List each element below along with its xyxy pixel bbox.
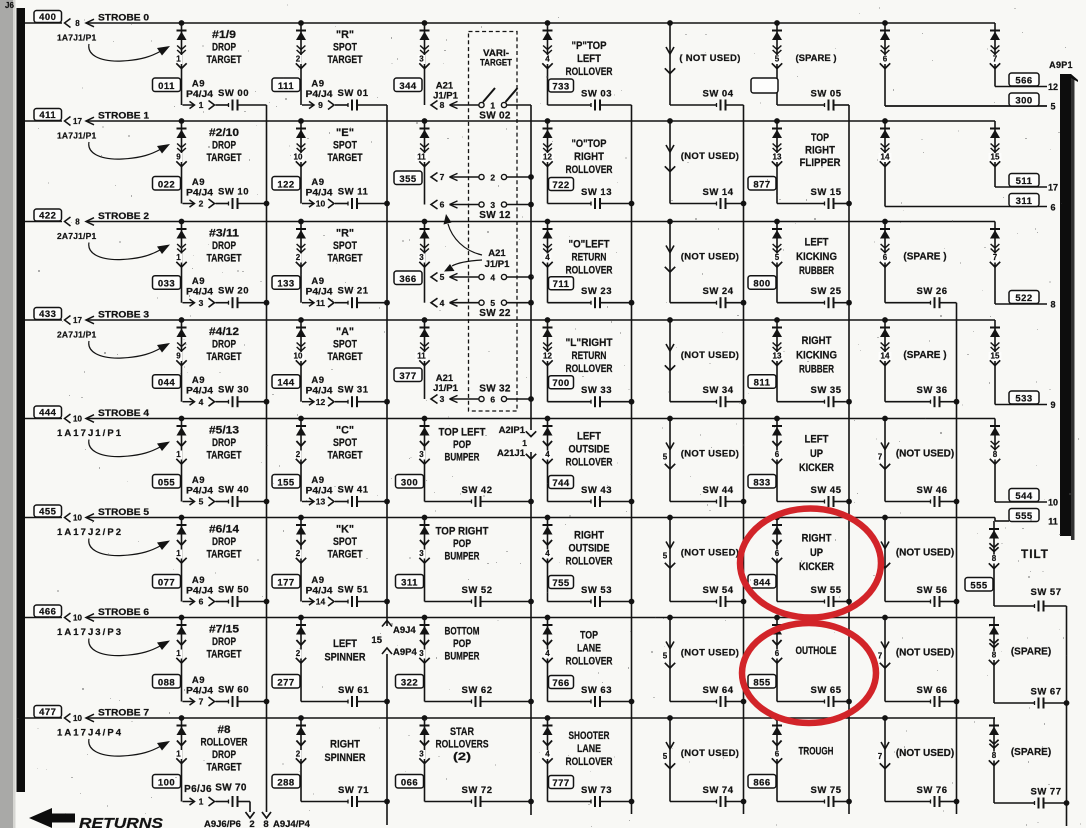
svg-text:8: 8 xyxy=(993,450,998,459)
svg-text:8: 8 xyxy=(75,19,80,28)
svg-text:8: 8 xyxy=(992,554,997,563)
svg-text:766: 766 xyxy=(552,678,569,689)
svg-text:3: 3 xyxy=(440,394,445,404)
svg-text:1: 1 xyxy=(522,438,527,448)
svg-text:TARGET: TARGET xyxy=(328,549,363,561)
svg-text:(SPARE ): (SPARE ) xyxy=(903,350,946,361)
svg-text:011: 011 xyxy=(158,81,175,92)
svg-text:300: 300 xyxy=(401,477,418,488)
svg-text:2: 2 xyxy=(296,549,301,558)
svg-text:RUBBER: RUBBER xyxy=(799,265,834,277)
svg-text:SW 40: SW 40 xyxy=(218,485,249,496)
svg-text:SW 26: SW 26 xyxy=(916,286,947,297)
svg-text:"A": "A" xyxy=(336,326,354,338)
svg-text:777: 777 xyxy=(552,778,569,789)
svg-text:4: 4 xyxy=(545,649,550,658)
svg-text:4: 4 xyxy=(490,272,495,282)
svg-text:4: 4 xyxy=(545,253,550,262)
svg-text:088: 088 xyxy=(158,677,175,688)
svg-text:755: 755 xyxy=(552,578,570,589)
svg-text:311: 311 xyxy=(401,577,418,588)
svg-text:KICKER: KICKER xyxy=(799,462,834,474)
svg-text:A9: A9 xyxy=(192,575,205,586)
svg-text:KICKING: KICKING xyxy=(796,350,837,362)
svg-text:544: 544 xyxy=(1015,491,1033,502)
svg-text:A9J4: A9J4 xyxy=(393,625,416,636)
svg-text:#6/14: #6/14 xyxy=(209,524,240,536)
svg-text:SW 36: SW 36 xyxy=(916,385,947,396)
svg-text:TARGET: TARGET xyxy=(328,450,363,462)
svg-text:15: 15 xyxy=(371,635,382,646)
svg-text:#4/12: #4/12 xyxy=(209,326,239,338)
svg-text:TOP: TOP xyxy=(811,132,829,144)
svg-text:3: 3 xyxy=(419,549,424,558)
svg-text:POP: POP xyxy=(453,638,471,650)
svg-text:477: 477 xyxy=(39,707,56,718)
svg-text:122: 122 xyxy=(277,179,294,190)
svg-text:TARGET: TARGET xyxy=(207,351,242,363)
svg-text:A21: A21 xyxy=(488,248,506,259)
svg-text:17: 17 xyxy=(73,117,82,126)
svg-text:5: 5 xyxy=(663,453,668,462)
svg-text:P4/J4: P4/J4 xyxy=(306,386,334,397)
svg-text:4: 4 xyxy=(545,549,550,558)
svg-text:10: 10 xyxy=(73,514,82,523)
svg-text:LEFT: LEFT xyxy=(805,434,829,446)
svg-text:SW 32: SW 32 xyxy=(479,384,511,395)
svg-text:DROP: DROP xyxy=(212,339,236,351)
svg-text:OUTHOLE: OUTHOLE xyxy=(796,645,837,657)
svg-text:6: 6 xyxy=(775,549,780,558)
svg-text:A9: A9 xyxy=(311,276,324,287)
svg-text:2A7J1/P1: 2A7J1/P1 xyxy=(57,330,96,340)
svg-text:SW 31: SW 31 xyxy=(337,385,368,396)
svg-text:SW 52: SW 52 xyxy=(461,585,492,596)
svg-text:13: 13 xyxy=(773,352,782,361)
svg-text:TARGET: TARGET xyxy=(207,450,242,462)
svg-text:A9: A9 xyxy=(311,575,324,586)
svg-text:KICKER: KICKER xyxy=(799,561,834,573)
svg-text:VARI-: VARI- xyxy=(483,48,509,58)
svg-text:111: 111 xyxy=(278,81,295,92)
svg-text:866: 866 xyxy=(753,777,770,788)
svg-text:A9P4: A9P4 xyxy=(393,647,417,658)
svg-text:6: 6 xyxy=(883,55,888,64)
svg-text:STROBE 3: STROBE 3 xyxy=(98,310,149,320)
svg-text:P4/J4: P4/J4 xyxy=(186,188,214,199)
svg-text:1: 1 xyxy=(176,649,181,658)
svg-text:(NOT USED): (NOT USED) xyxy=(681,748,739,759)
svg-text:5: 5 xyxy=(663,652,668,661)
svg-text:800: 800 xyxy=(753,279,770,290)
svg-text:SW 15: SW 15 xyxy=(810,187,841,198)
svg-text:RETURN: RETURN xyxy=(572,252,607,264)
svg-text:7: 7 xyxy=(993,55,998,64)
svg-text:6: 6 xyxy=(199,597,204,607)
svg-text:A9: A9 xyxy=(311,177,324,188)
svg-text:711: 711 xyxy=(553,279,570,290)
svg-text:TARGET: TARGET xyxy=(480,58,513,68)
svg-text:ROLLOVER: ROLLOVER xyxy=(201,737,248,749)
svg-text:1: 1 xyxy=(490,100,495,110)
svg-text:J6: J6 xyxy=(5,1,14,10)
svg-text:BUMPER: BUMPER xyxy=(445,651,480,663)
svg-text:SW 61: SW 61 xyxy=(338,685,369,696)
svg-text:1A7J1/P1: 1A7J1/P1 xyxy=(57,33,96,43)
svg-text:A9J6/P6: A9J6/P6 xyxy=(204,819,241,828)
svg-text:077: 077 xyxy=(158,577,175,588)
svg-text:8: 8 xyxy=(1050,300,1055,310)
svg-text:FLIPPER: FLIPPER xyxy=(800,157,841,169)
svg-text:ROLLOVER: ROLLOVER xyxy=(566,656,613,668)
svg-text:811: 811 xyxy=(754,378,771,389)
svg-text:"C": "C" xyxy=(336,425,354,437)
svg-text:8: 8 xyxy=(992,751,997,760)
svg-text:300: 300 xyxy=(1015,95,1032,106)
svg-text:8: 8 xyxy=(992,651,997,660)
svg-text:SW 74: SW 74 xyxy=(702,785,733,796)
svg-text:466: 466 xyxy=(39,606,56,617)
svg-text:TARGET: TARGET xyxy=(207,54,242,66)
svg-text:OUTSIDE: OUTSIDE xyxy=(569,444,610,456)
svg-text:(2): (2) xyxy=(453,751,471,763)
svg-text:1: 1 xyxy=(199,797,204,807)
svg-text:DROP: DROP xyxy=(212,636,236,648)
svg-text:7: 7 xyxy=(993,253,998,262)
svg-text:LEFT: LEFT xyxy=(577,431,601,443)
svg-text:P4/J4: P4/J4 xyxy=(306,188,334,199)
svg-text:ROLLOVER: ROLLOVER xyxy=(566,66,613,78)
svg-text:722: 722 xyxy=(552,180,569,191)
svg-text:SW 34: SW 34 xyxy=(702,385,733,396)
svg-text:17: 17 xyxy=(73,316,82,325)
svg-text:17: 17 xyxy=(1048,183,1058,193)
svg-text:P4/J4: P4/J4 xyxy=(306,89,334,100)
svg-text:A9: A9 xyxy=(192,375,205,386)
svg-text:STAR: STAR xyxy=(450,726,474,738)
svg-text:P4/J4: P4/J4 xyxy=(186,586,214,597)
svg-text:SW 20: SW 20 xyxy=(218,286,249,297)
svg-text:P4/J4: P4/J4 xyxy=(186,386,214,397)
svg-text:TARGET: TARGET xyxy=(328,253,363,265)
svg-text:KICKING: KICKING xyxy=(796,251,837,263)
svg-text:SW 60: SW 60 xyxy=(218,685,249,696)
svg-text:066: 066 xyxy=(401,777,418,788)
svg-text:STROBE 6: STROBE 6 xyxy=(98,607,149,617)
svg-text:TARGET: TARGET xyxy=(207,253,242,265)
svg-text:ROLLOVER: ROLLOVER xyxy=(566,164,613,176)
svg-text:311: 311 xyxy=(1016,196,1033,207)
svg-text:"O"TOP: "O"TOP xyxy=(572,138,607,150)
svg-text:10: 10 xyxy=(294,352,303,361)
svg-text:4: 4 xyxy=(440,298,445,308)
svg-text:377: 377 xyxy=(399,371,416,382)
svg-text:ROLLOVER: ROLLOVER xyxy=(566,457,613,469)
svg-text:144: 144 xyxy=(277,378,295,389)
svg-text:BUMPER: BUMPER xyxy=(445,452,480,464)
svg-text:RIGHT: RIGHT xyxy=(330,739,360,751)
svg-text:TARGET: TARGET xyxy=(207,152,242,164)
svg-text:(NOT USED): (NOT USED) xyxy=(681,151,739,162)
svg-text:SW 50: SW 50 xyxy=(218,585,249,596)
svg-text:A2IP1: A2IP1 xyxy=(499,425,526,436)
svg-text:A21J1: A21J1 xyxy=(497,448,526,459)
svg-text:14: 14 xyxy=(881,153,890,162)
svg-text:TARGET: TARGET xyxy=(207,649,242,661)
svg-text:1A17J1/P1: 1A17J1/P1 xyxy=(57,428,122,439)
svg-text:TARGET: TARGET xyxy=(207,762,242,774)
svg-text:7: 7 xyxy=(878,652,883,661)
svg-text:1: 1 xyxy=(199,100,204,110)
svg-text:RIGHT: RIGHT xyxy=(802,335,832,347)
svg-text:ROLLOVER: ROLLOVER xyxy=(566,363,613,375)
svg-text:"L"RIGHT: "L"RIGHT xyxy=(566,337,613,349)
svg-text:5: 5 xyxy=(490,298,495,308)
svg-text:433: 433 xyxy=(39,309,56,320)
svg-text:5: 5 xyxy=(199,497,204,507)
svg-text:A9: A9 xyxy=(192,475,205,486)
svg-text:POP: POP xyxy=(453,439,471,451)
svg-text:6: 6 xyxy=(883,253,888,262)
svg-text:7: 7 xyxy=(878,453,883,462)
svg-text:10: 10 xyxy=(73,415,82,424)
svg-text:744: 744 xyxy=(552,478,570,489)
svg-text:3: 3 xyxy=(419,750,424,759)
svg-text:SW 42: SW 42 xyxy=(461,485,492,496)
svg-text:SW 43: SW 43 xyxy=(581,485,612,496)
svg-text:SW 62: SW 62 xyxy=(461,685,492,696)
svg-text:A9: A9 xyxy=(311,375,324,386)
svg-text:BUMPER: BUMPER xyxy=(445,551,480,563)
svg-text:P4/J4: P4/J4 xyxy=(186,287,214,298)
svg-text:3: 3 xyxy=(419,55,424,64)
svg-text:SW 35: SW 35 xyxy=(810,385,841,396)
svg-text:LEFT: LEFT xyxy=(577,53,601,65)
svg-text:A9: A9 xyxy=(192,79,205,90)
svg-text:1A17J4/P4: 1A17J4/P4 xyxy=(57,728,122,739)
svg-text:SHOOTER: SHOOTER xyxy=(569,730,610,742)
svg-text:"E": "E" xyxy=(336,127,354,139)
svg-text:(NOT USED): (NOT USED) xyxy=(681,648,739,659)
svg-text:1: 1 xyxy=(176,253,181,262)
svg-text:DROP: DROP xyxy=(212,42,236,54)
svg-text:LANE: LANE xyxy=(577,743,601,755)
svg-text:12: 12 xyxy=(316,397,326,407)
svg-text:9: 9 xyxy=(176,352,181,361)
svg-text:14: 14 xyxy=(881,352,890,361)
svg-text:155: 155 xyxy=(277,477,295,488)
svg-text:(SPARE ): (SPARE ) xyxy=(796,53,837,64)
svg-text:RETURNS: RETURNS xyxy=(79,815,163,828)
svg-text:DROP: DROP xyxy=(212,140,236,152)
svg-text:SPINNER: SPINNER xyxy=(325,652,366,664)
svg-text:TARGET: TARGET xyxy=(207,549,242,561)
svg-text:344: 344 xyxy=(399,81,417,92)
svg-text:STROBE 5: STROBE 5 xyxy=(98,507,149,517)
svg-text:9: 9 xyxy=(318,100,323,110)
svg-text:733: 733 xyxy=(552,81,569,92)
svg-text:SW 53: SW 53 xyxy=(581,585,612,596)
svg-text:4: 4 xyxy=(545,450,550,459)
svg-text:7: 7 xyxy=(878,752,883,761)
svg-text:LEFT: LEFT xyxy=(805,237,829,249)
svg-text:033: 033 xyxy=(158,279,175,290)
svg-text:SW 10: SW 10 xyxy=(218,187,249,198)
svg-text:700: 700 xyxy=(552,378,569,389)
svg-text:SPOT: SPOT xyxy=(333,42,357,54)
svg-text:DROP: DROP xyxy=(212,437,236,449)
svg-text:SW 11: SW 11 xyxy=(338,187,369,198)
svg-text:SW 51: SW 51 xyxy=(337,585,368,596)
svg-text:422: 422 xyxy=(39,210,56,221)
svg-text:10: 10 xyxy=(73,614,82,623)
svg-text:TARGET: TARGET xyxy=(328,54,363,66)
svg-text:9: 9 xyxy=(176,153,181,162)
svg-text:SPOT: SPOT xyxy=(333,437,357,449)
svg-text:RETURN: RETURN xyxy=(572,350,607,362)
svg-text:555: 555 xyxy=(970,580,988,591)
svg-text:P4/J4: P4/J4 xyxy=(186,89,214,100)
svg-text:RIGHT: RIGHT xyxy=(574,151,604,163)
svg-text:(NOT USED): (NOT USED) xyxy=(896,748,954,759)
svg-text:(NOT USED): (NOT USED) xyxy=(681,548,739,559)
svg-text:8: 8 xyxy=(263,819,268,828)
svg-text:10: 10 xyxy=(1048,498,1058,508)
svg-text:177: 177 xyxy=(277,577,294,588)
svg-text:(SPARE): (SPARE) xyxy=(1011,747,1051,758)
svg-text:( NOT USED): ( NOT USED) xyxy=(679,53,740,64)
svg-text:SW 03: SW 03 xyxy=(581,89,612,100)
svg-text:#7/15: #7/15 xyxy=(209,624,239,636)
svg-text:277: 277 xyxy=(277,677,294,688)
svg-text:1: 1 xyxy=(176,549,181,558)
svg-text:SW 75: SW 75 xyxy=(810,785,841,796)
svg-text:RUBBER: RUBBER xyxy=(799,364,834,376)
svg-text:DROP: DROP xyxy=(212,240,236,252)
svg-text:OUTSIDE: OUTSIDE xyxy=(569,543,610,555)
svg-text:#2/10: #2/10 xyxy=(209,127,239,139)
svg-text:#1/9: #1/9 xyxy=(212,29,236,41)
svg-text:TARGET: TARGET xyxy=(328,152,363,164)
svg-text:UP: UP xyxy=(810,547,823,559)
svg-text:BOTTOM: BOTTOM xyxy=(445,626,480,638)
svg-text:844: 844 xyxy=(753,577,771,588)
svg-text:SW 14: SW 14 xyxy=(702,187,733,198)
svg-text:322: 322 xyxy=(401,677,418,688)
svg-text:11: 11 xyxy=(417,153,426,162)
svg-text:DROP: DROP xyxy=(212,749,236,761)
svg-text:7: 7 xyxy=(199,697,204,707)
svg-text:SW 70: SW 70 xyxy=(215,783,247,794)
svg-text:1: 1 xyxy=(176,55,181,64)
svg-text:SW 12: SW 12 xyxy=(479,210,511,221)
svg-text:6: 6 xyxy=(775,450,780,459)
svg-text:13: 13 xyxy=(316,497,326,507)
svg-text:3: 3 xyxy=(419,649,424,658)
svg-text:A9: A9 xyxy=(192,675,205,686)
svg-text:RIGHT: RIGHT xyxy=(802,533,832,545)
svg-text:12: 12 xyxy=(543,352,552,361)
svg-text:6: 6 xyxy=(775,649,780,658)
svg-text:(SPARE ): (SPARE ) xyxy=(903,252,946,263)
svg-text:7: 7 xyxy=(440,172,445,182)
svg-text:1A17J2/P2: 1A17J2/P2 xyxy=(57,527,121,538)
svg-text:SW 01: SW 01 xyxy=(337,88,368,99)
svg-text:SW 44: SW 44 xyxy=(702,485,733,496)
svg-text:5: 5 xyxy=(663,752,668,761)
svg-text:2: 2 xyxy=(490,172,495,182)
svg-text:SPINNER: SPINNER xyxy=(325,752,366,764)
svg-text:411: 411 xyxy=(39,110,56,121)
svg-text:11: 11 xyxy=(417,352,426,361)
svg-text:TOP RIGHT: TOP RIGHT xyxy=(436,526,489,538)
svg-text:STROBE 0: STROBE 0 xyxy=(98,13,149,23)
svg-text:5: 5 xyxy=(775,55,780,64)
svg-text:SPOT: SPOT xyxy=(333,339,357,351)
svg-text:3: 3 xyxy=(490,200,495,210)
svg-text:A9P1: A9P1 xyxy=(1049,60,1073,70)
svg-text:SW 24: SW 24 xyxy=(702,286,733,297)
svg-text:SW 04: SW 04 xyxy=(702,89,733,100)
svg-text:"O"LEFT: "O"LEFT xyxy=(569,239,610,251)
svg-text:J1/P1: J1/P1 xyxy=(433,383,459,394)
svg-text:#3/11: #3/11 xyxy=(209,228,239,240)
svg-text:8: 8 xyxy=(75,218,80,227)
svg-text:SW 63: SW 63 xyxy=(581,685,612,696)
svg-text:P4/J4: P4/J4 xyxy=(306,486,334,497)
svg-text:4: 4 xyxy=(199,397,204,407)
svg-text:10: 10 xyxy=(316,199,326,209)
svg-text:POP: POP xyxy=(453,538,471,550)
svg-text:833: 833 xyxy=(753,477,770,488)
svg-text:A9: A9 xyxy=(311,475,324,486)
svg-text:(NOT USED): (NOT USED) xyxy=(896,449,954,460)
svg-text:3: 3 xyxy=(419,450,424,459)
svg-text:10: 10 xyxy=(73,714,82,723)
svg-text:P4/J4: P4/J4 xyxy=(186,686,214,697)
svg-text:ROLLOVERS: ROLLOVERS xyxy=(436,739,489,751)
svg-text:SW 33: SW 33 xyxy=(581,385,612,396)
svg-text:SW 64: SW 64 xyxy=(702,685,733,696)
svg-text:(NOT USED): (NOT USED) xyxy=(681,252,739,263)
svg-text:5: 5 xyxy=(440,272,445,282)
svg-text:1A7J1/P1: 1A7J1/P1 xyxy=(57,131,96,141)
svg-text:A9: A9 xyxy=(192,276,205,287)
svg-text:SW 05: SW 05 xyxy=(810,89,841,100)
svg-text:SW 56: SW 56 xyxy=(916,585,947,596)
svg-text:RIGHT: RIGHT xyxy=(805,145,835,157)
svg-text:"R": "R" xyxy=(336,29,354,41)
svg-text:STROBE 7: STROBE 7 xyxy=(98,708,149,718)
svg-text:2: 2 xyxy=(296,649,301,658)
svg-text:"R": "R" xyxy=(336,228,354,240)
svg-text:533: 533 xyxy=(1015,393,1032,404)
svg-text:STROBE 2: STROBE 2 xyxy=(98,211,149,221)
svg-text:J1/P1: J1/P1 xyxy=(485,259,511,270)
svg-text:3: 3 xyxy=(199,298,204,308)
svg-text:SW 22: SW 22 xyxy=(479,308,511,319)
svg-text:SW 54: SW 54 xyxy=(702,585,733,596)
svg-text:15: 15 xyxy=(991,153,1000,162)
svg-text:444: 444 xyxy=(39,407,57,418)
svg-text:6: 6 xyxy=(1050,203,1055,213)
svg-text:14: 14 xyxy=(316,597,326,607)
svg-text:(NOT USED): (NOT USED) xyxy=(896,648,954,659)
svg-text:SW 65: SW 65 xyxy=(810,685,841,696)
svg-text:SPOT: SPOT xyxy=(333,536,357,548)
svg-text:"K": "K" xyxy=(336,524,354,536)
svg-text:12: 12 xyxy=(1048,82,1058,92)
